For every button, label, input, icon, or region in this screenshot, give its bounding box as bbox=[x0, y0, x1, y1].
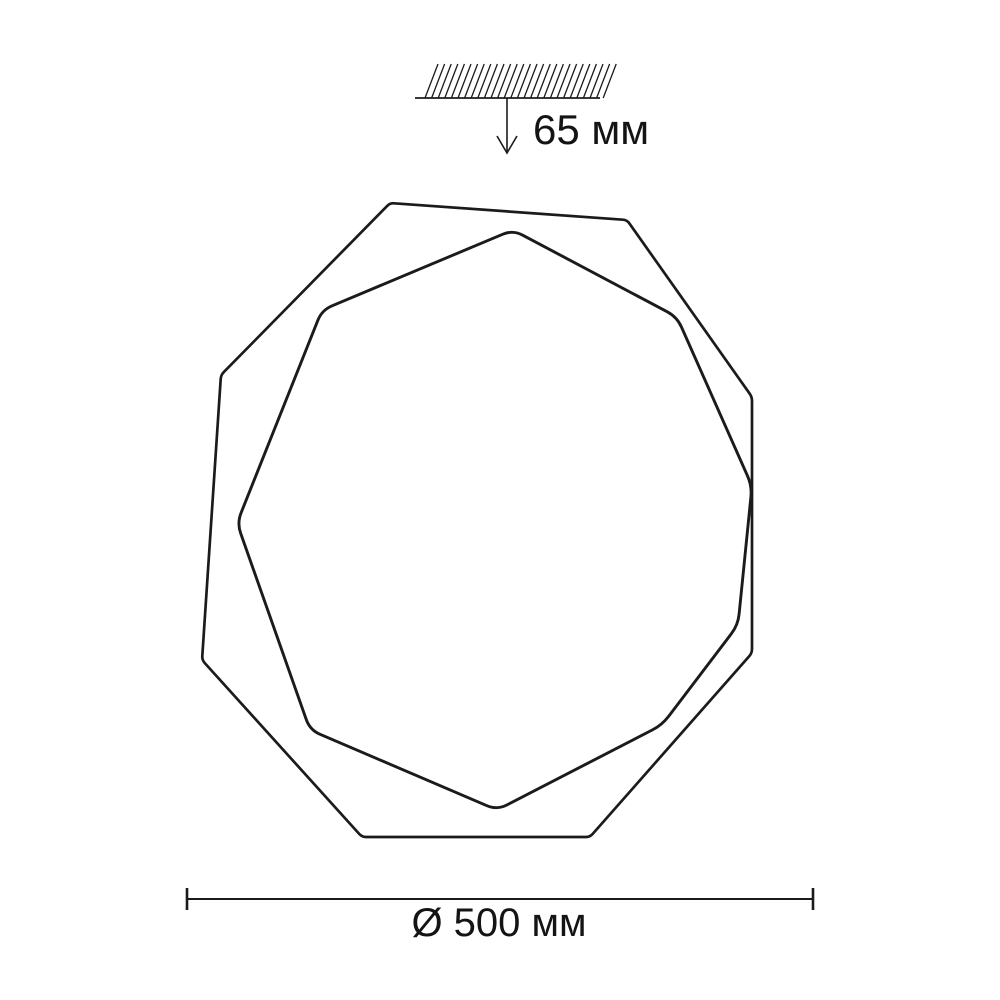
hatch-stroke bbox=[557, 64, 570, 98]
hatch-stroke bbox=[465, 64, 478, 98]
diagram-canvas: 65 мм Ø 500 мм bbox=[0, 0, 1000, 1000]
hatch-stroke bbox=[484, 64, 497, 98]
hatch-stroke bbox=[432, 64, 445, 98]
hatch-stroke bbox=[498, 64, 511, 98]
hatch-stroke bbox=[590, 64, 603, 98]
hatch-stroke bbox=[491, 64, 504, 98]
lamp-inner-outline bbox=[239, 232, 751, 807]
hatch-stroke bbox=[451, 64, 464, 98]
lamp-outer-outline bbox=[202, 203, 752, 837]
hatch-stroke bbox=[438, 64, 451, 98]
hatch-stroke bbox=[564, 64, 577, 98]
hatch-stroke bbox=[550, 64, 563, 98]
hatch-stroke bbox=[570, 64, 583, 98]
hatch-stroke bbox=[524, 64, 537, 98]
hatch-stroke bbox=[504, 64, 517, 98]
hatch-stroke bbox=[511, 64, 524, 98]
hatch-stroke bbox=[517, 64, 530, 98]
lamp-dimension-diagram: 65 мм Ø 500 мм bbox=[0, 0, 1000, 1000]
hatch-stroke bbox=[445, 64, 458, 98]
hatch-stroke bbox=[478, 64, 491, 98]
hatch-stroke bbox=[577, 64, 590, 98]
hatch-stroke bbox=[531, 64, 544, 98]
hatch-stroke bbox=[603, 64, 616, 98]
hatch-stroke bbox=[544, 64, 557, 98]
mount-depth-arrow bbox=[497, 98, 517, 153]
hatch-stroke bbox=[597, 64, 610, 98]
hatch-stroke bbox=[583, 64, 596, 98]
hatch-stroke bbox=[458, 64, 471, 98]
ceiling-hatch bbox=[415, 64, 616, 98]
hatch-stroke bbox=[425, 64, 438, 98]
mount-depth-label: 65 мм bbox=[533, 106, 649, 153]
hatch-stroke bbox=[471, 64, 484, 98]
hatch-stroke bbox=[537, 64, 550, 98]
diameter-label: Ø 500 мм bbox=[411, 901, 586, 945]
